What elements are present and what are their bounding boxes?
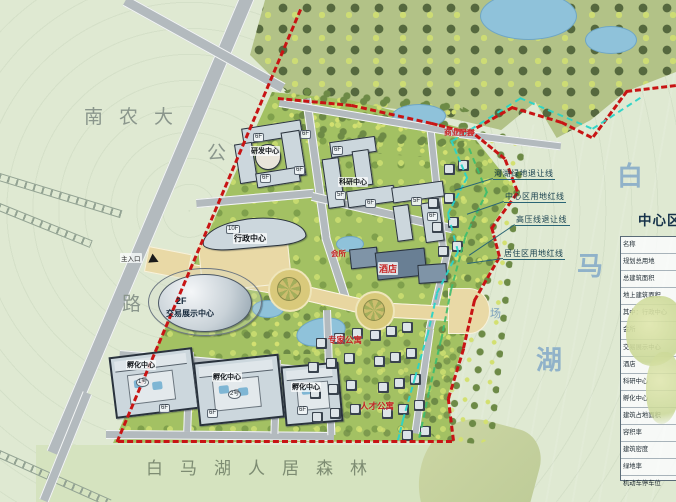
forest-pond	[585, 26, 637, 54]
legend-row: 机动车停车位	[621, 476, 676, 492]
callout-underline	[504, 202, 566, 203]
expo-floor-label: 2F	[176, 296, 187, 306]
lake-name-char: 马	[577, 246, 603, 283]
hotel-label: 酒店	[378, 262, 398, 275]
research-b-label: 科研中心	[338, 177, 368, 187]
floor-tag: 6F	[294, 166, 305, 175]
callout-residential-red: 居住区用地红线	[504, 248, 564, 259]
legend-overlay-blob	[646, 352, 676, 424]
floor-tag: 5F	[411, 197, 422, 206]
callout-high-voltage: 高压线退让线	[516, 214, 567, 225]
legend-row: 规划总用地	[621, 254, 676, 271]
floor-tag: 6F	[332, 146, 343, 155]
roundabout-garden	[363, 299, 385, 321]
legend-row: 总建筑面积	[621, 271, 676, 288]
master-plan-map: 南农大 公 路 白马湖人居森林 白 马 湖 场 主入口 10F 行政中心 2F …	[0, 0, 676, 502]
incubator-2-label: 孵化中心	[212, 372, 242, 382]
red-boundary-dash	[118, 440, 452, 443]
legend-row: 容积率	[621, 425, 676, 442]
roundabout-garden	[277, 277, 301, 301]
legend-row: 建筑密度	[621, 442, 676, 459]
plaza-char-label: 场	[490, 305, 501, 321]
callout-center-red: 中心区用地红线	[505, 191, 565, 202]
incubator-1-label: 孵化中心	[126, 360, 156, 370]
floor-tag: 6F	[159, 404, 170, 413]
legend-row: 名称	[621, 237, 676, 254]
legend-row: 绿地率	[621, 459, 676, 476]
floor-tag: 6F	[260, 174, 271, 183]
floor-tag: 6F	[297, 406, 308, 415]
commercial-label: 商业配套	[444, 127, 474, 138]
floor-tag: 6F	[300, 130, 311, 139]
apartment-label: 人才公寓	[360, 400, 394, 412]
floor-tag: 6F	[427, 212, 438, 221]
research-a-label: 研发中心	[250, 146, 280, 156]
callout-underline	[515, 225, 570, 226]
main-entrance-label: 主入口	[120, 253, 142, 263]
apartment-label: 专家公寓	[328, 334, 362, 346]
club-label: 会所	[331, 248, 346, 259]
floor-tag: 6F	[253, 133, 264, 142]
floor-tag: 6F	[365, 199, 376, 208]
callout-underline	[503, 259, 565, 260]
courtyard-pool	[152, 381, 163, 390]
forest-band-label: 白马湖人居森林	[146, 454, 384, 479]
floor-tag: 5F	[335, 191, 346, 200]
incubator-3-label: 孵化中心	[291, 382, 321, 392]
expo-center-label: 交易展示中心	[166, 308, 214, 319]
building-wing	[286, 367, 333, 381]
callout-river-green: 河湖绿地退让线	[494, 168, 554, 179]
lake-name-char: 白	[617, 156, 643, 193]
incubator-3-building	[280, 362, 343, 427]
campus-label: 南农大	[84, 102, 189, 129]
villa-roofs	[0, 0, 8, 8]
callout-underline	[493, 179, 555, 180]
road-name-char: 路	[122, 289, 141, 316]
admin-center-label: 行政中心	[233, 233, 267, 244]
legend-title: 中心区	[638, 209, 676, 229]
expo-dome-building	[158, 274, 252, 332]
road-name-char: 公	[207, 138, 226, 165]
lake-name-char: 湖	[536, 340, 562, 377]
floor-tag: 6F	[207, 409, 218, 418]
